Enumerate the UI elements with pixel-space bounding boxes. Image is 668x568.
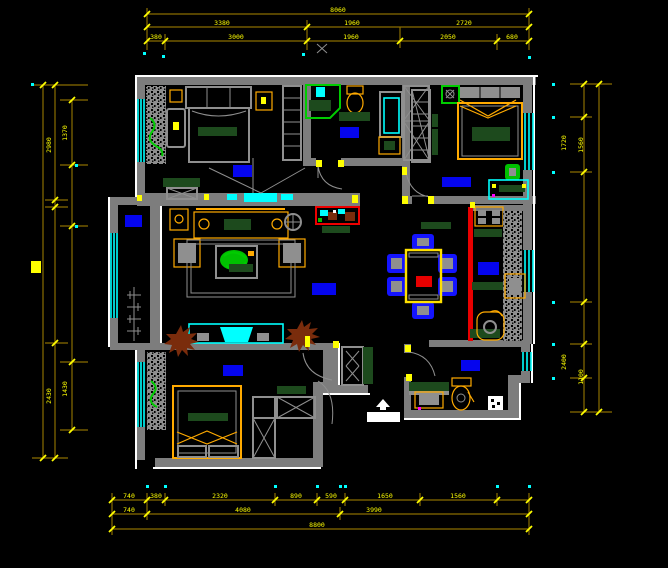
dim-label: 3000 xyxy=(228,33,244,41)
dimension-guide-cyan xyxy=(31,83,34,86)
dim-label: 1560 xyxy=(450,492,466,500)
shower-bench xyxy=(309,100,331,111)
entry-arrow-icon xyxy=(376,399,390,410)
living-room xyxy=(164,209,336,357)
counter-hatched xyxy=(503,211,522,341)
dim-label: 1100 xyxy=(577,369,585,385)
bed-double xyxy=(186,87,251,162)
dimension-guides-cyan xyxy=(143,52,531,59)
dim-label: 8800 xyxy=(309,521,325,529)
dim-label: 1370 xyxy=(61,125,69,141)
chair-seat xyxy=(509,168,516,176)
kitchen xyxy=(468,207,525,341)
wardrobe-rungs xyxy=(412,90,430,162)
closet-rungs xyxy=(283,98,301,146)
room-label-balcony xyxy=(125,215,142,227)
sideboard xyxy=(421,222,451,229)
dimension-guide-cyan xyxy=(75,225,78,228)
balcony xyxy=(125,215,142,341)
shelf xyxy=(277,386,306,394)
door-swing-bath1 xyxy=(318,166,342,189)
dim-label: 740 xyxy=(123,492,135,500)
dim-label: 3380 xyxy=(214,19,230,27)
room-label-living xyxy=(312,283,336,295)
shoe-cabinet xyxy=(342,347,373,385)
bed-double xyxy=(173,386,241,458)
counter-1 xyxy=(474,229,502,237)
room-label-bath2 xyxy=(461,360,480,371)
window-kitchen-right xyxy=(525,250,533,292)
dim-label: 1650 xyxy=(377,492,393,500)
dimension-guides-cyan xyxy=(146,485,531,488)
shower-head xyxy=(316,87,325,97)
hall-console xyxy=(316,207,359,233)
nightstand-left xyxy=(170,90,182,102)
dim-label: 590 xyxy=(325,492,337,500)
room-label-bathroom1 xyxy=(340,127,359,138)
dimension-block-bottom: 740 380 2320 890 590 1650 1560 740 4080 … xyxy=(109,485,532,535)
tv xyxy=(220,327,253,342)
dim-label: 2980 xyxy=(45,137,53,153)
bedroom3 xyxy=(147,352,332,458)
floor-plan-drawing: 8060 3380 1960 2720 380 3000 1960 2050 6… xyxy=(0,0,668,568)
closet-projection-right xyxy=(261,168,305,193)
cad-canvas[interactable]: 8060 3380 1960 2720 380 3000 1960 2050 6… xyxy=(0,0,668,568)
bathroom2 xyxy=(409,352,503,410)
dim-label: 2400 xyxy=(560,354,568,370)
dining-area xyxy=(387,222,457,319)
dimension-block-left: 2980 1370 2430 1430 xyxy=(31,82,88,461)
bedroom1 xyxy=(146,86,305,199)
bathroom1 xyxy=(306,85,429,189)
room-label-bedroom1 xyxy=(233,165,252,177)
dim-label: 2720 xyxy=(456,19,472,27)
dimension-block-top: 8060 3380 1960 2720 380 3000 1960 2050 6… xyxy=(143,6,532,59)
toilet xyxy=(452,378,474,410)
window-bedroom2-right xyxy=(525,113,533,170)
wardrobe-boxes xyxy=(253,397,315,458)
dining-table xyxy=(406,250,441,302)
bed-double xyxy=(458,87,522,159)
dimension-guide-cyan xyxy=(75,164,78,167)
dim-label: 890 xyxy=(290,492,302,500)
dim-label: 2430 xyxy=(45,388,53,404)
dim-label: 380 xyxy=(150,492,162,500)
dimension-block-right: 1720 1560 2400 1100 xyxy=(552,81,612,415)
dim-label: 1960 xyxy=(343,33,359,41)
dim-label: 680 xyxy=(506,33,518,41)
dim-label: 1720 xyxy=(560,135,568,151)
bench xyxy=(409,382,449,391)
chest-handle xyxy=(173,122,179,130)
window-balcony-left xyxy=(111,233,117,318)
shelf xyxy=(339,112,370,121)
closet-ladder xyxy=(283,86,301,160)
dim-label: 1560 xyxy=(577,137,585,153)
room-label-kitchen xyxy=(478,262,499,275)
speaker-left xyxy=(197,333,209,341)
sofa-set xyxy=(170,209,305,297)
room-label-bedroom3 xyxy=(223,365,243,376)
washing-machine xyxy=(488,396,503,410)
dim-label: 740 xyxy=(123,506,135,514)
side-table-left xyxy=(170,209,188,230)
dresser-top xyxy=(163,178,200,187)
wardrobe-hatched xyxy=(147,352,166,430)
hall-mat xyxy=(322,226,350,233)
window-bath2-right xyxy=(523,352,531,371)
dim-label: 380 xyxy=(150,33,162,41)
dim-label: 3990 xyxy=(366,506,382,514)
room-label-bedroom2 xyxy=(442,177,471,187)
dim-label: 4080 xyxy=(235,506,251,514)
section-mark-icon xyxy=(317,44,327,53)
window-bedroom3-left xyxy=(138,362,144,427)
dimension-guides-cyan xyxy=(552,83,555,380)
dim-label: 2050 xyxy=(440,33,456,41)
dim-label: 2320 xyxy=(212,492,228,500)
speaker-right xyxy=(257,333,269,341)
lamp xyxy=(261,97,266,104)
sliding-door-track xyxy=(468,207,473,341)
plant-left-icon xyxy=(164,325,199,357)
dim-label: 1960 xyxy=(344,19,360,27)
toilet xyxy=(347,86,363,113)
door-swing-bath2 xyxy=(409,352,435,376)
dim-label: 1430 xyxy=(61,381,69,397)
wash-basin xyxy=(384,98,399,133)
drying-rack xyxy=(127,287,141,341)
bedroom2 xyxy=(406,86,528,199)
left-total-dimension-blob xyxy=(31,261,41,273)
window-bedroom1-left xyxy=(138,99,144,162)
counter-2 xyxy=(472,282,503,290)
entry-threshold xyxy=(367,412,400,422)
plant-box xyxy=(442,86,459,103)
tv-wall xyxy=(164,320,320,357)
dim-label: 8060 xyxy=(330,6,346,14)
